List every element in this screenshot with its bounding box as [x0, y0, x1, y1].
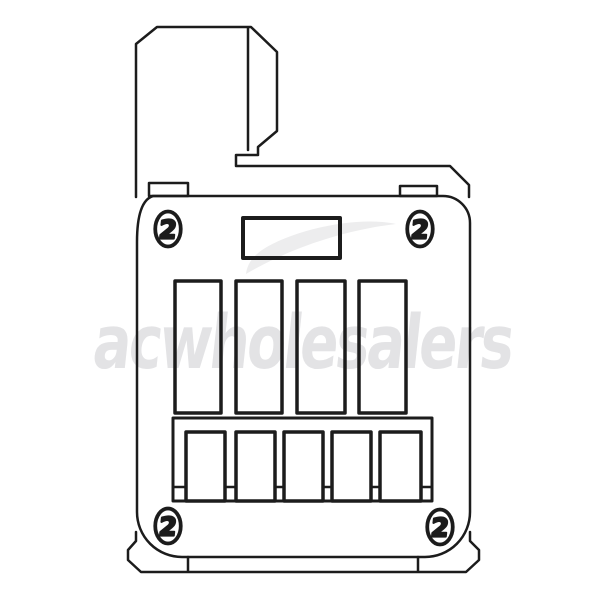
watermark-text: acwholesalers — [89, 299, 517, 386]
mounting-tab — [149, 183, 188, 196]
base-skirt-dividers — [188, 557, 418, 571]
mounting-tabs — [149, 183, 437, 196]
terminal-pin — [236, 432, 275, 501]
mounting-tab — [400, 186, 437, 196]
screw-head-icon — [407, 212, 433, 247]
watermark-layer: acwholesalers — [89, 222, 517, 386]
watermark-swoosh-icon — [246, 222, 396, 274]
base-skirt — [128, 532, 479, 572]
terminal-pin — [380, 432, 421, 501]
screw-head-icon — [427, 510, 453, 545]
terminal-block — [173, 418, 432, 501]
mounting-arm — [136, 27, 469, 197]
terminal-pin — [284, 432, 323, 501]
terminal-pins — [186, 432, 421, 501]
drawing-canvas: 2 acwholesalers — [0, 0, 600, 600]
terminal-pin — [332, 432, 371, 501]
screw-head-icon — [155, 212, 181, 247]
screw-head-icon — [155, 509, 181, 544]
terminal-pin — [186, 432, 225, 501]
product-line-drawing: 2 acwholesalers — [0, 0, 600, 600]
